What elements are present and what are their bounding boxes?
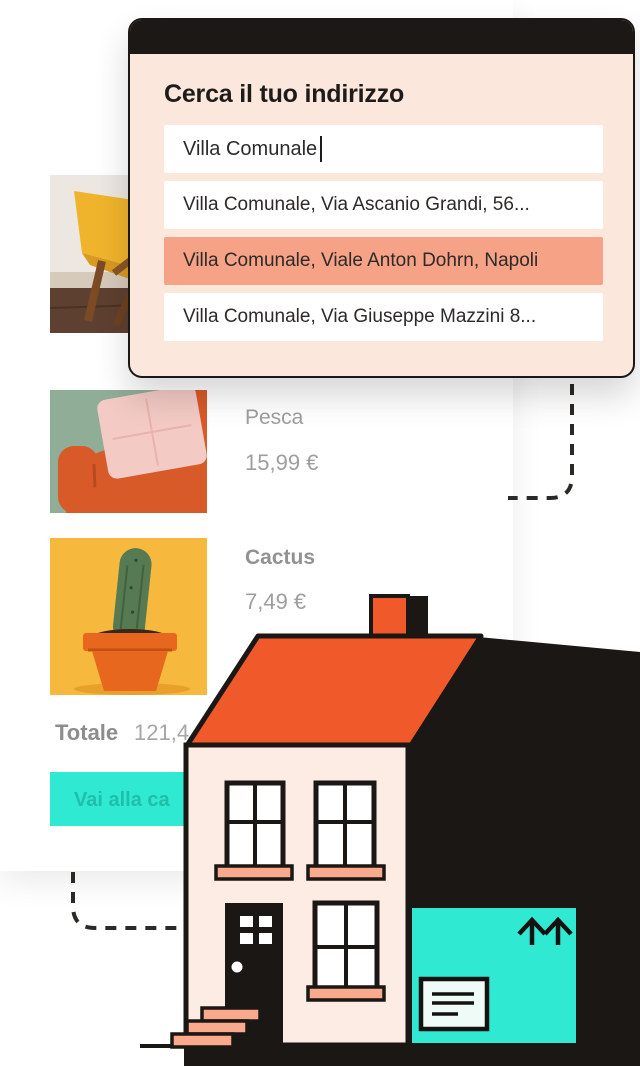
product-price: 15,99 €: [245, 451, 318, 475]
garage-front: [410, 906, 578, 1045]
product-price: 7,49 €: [245, 590, 306, 614]
address-suggestion-2-highlighted[interactable]: Villa Comunale, Viale Anton Dohrn, Napol…: [164, 237, 603, 285]
total-label: Totale: [55, 720, 118, 746]
modal-header: [130, 20, 633, 54]
checkout-button[interactable]: Vai alla ca: [50, 772, 264, 826]
product-name: Pesca: [245, 406, 303, 430]
dashed-connector-right: [508, 384, 572, 498]
orange-sofa-photo: [50, 390, 207, 513]
total-value: 121,4: [134, 720, 189, 746]
search-input-value: Villa Comunale: [183, 138, 317, 161]
dashed-connector-left: [73, 872, 183, 928]
ground: [140, 1044, 640, 1066]
shipping-label-icon: [421, 979, 487, 1029]
up-arrows-icon: [519, 920, 571, 945]
product-name: Cactus: [245, 546, 315, 570]
address-suggestion-3[interactable]: Villa Comunale, Via Giuseppe Mazzini 8..…: [164, 293, 603, 341]
steps: [172, 1008, 260, 1047]
product-image-cactus: [50, 538, 207, 695]
page: Pesca 15,99 € Cactus 7,49 € Totale 121,4…: [0, 0, 640, 1066]
text-cursor: [320, 136, 322, 162]
window-ground: [308, 903, 384, 1000]
cactus-pot-photo: [50, 538, 207, 695]
address-search-modal: Cerca il tuo indirizzo Villa Comunale Vi…: [128, 18, 635, 378]
address-suggestion-1[interactable]: Villa Comunale, Via Ascanio Grandi, 56..…: [164, 181, 603, 229]
modal-body: Cerca il tuo indirizzo Villa Comunale Vi…: [130, 54, 633, 341]
address-search-input[interactable]: Villa Comunale: [164, 125, 603, 173]
front-door: [225, 903, 283, 1045]
garage-dark-side: [578, 906, 623, 1045]
modal-title: Cerca il tuo indirizzo: [164, 80, 603, 108]
product-image-sofa: [50, 390, 207, 513]
